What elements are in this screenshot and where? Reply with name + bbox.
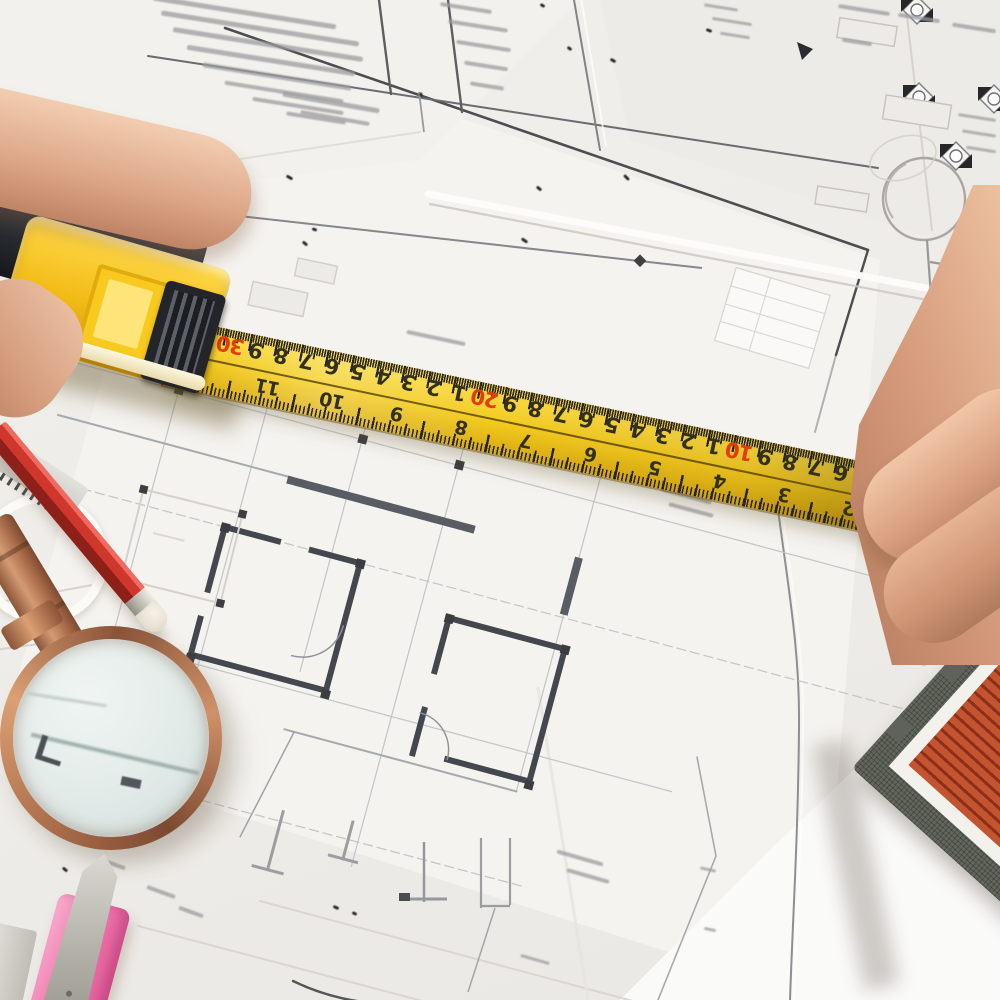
lens-blueprint-line (25, 692, 107, 708)
plan-bottom-columns (399, 838, 510, 992)
tape-inch-number: 10 (319, 388, 347, 412)
title-block-table (715, 268, 831, 369)
tape-cm-number: 30 (215, 331, 246, 357)
tape-inch-number: 11 (254, 374, 282, 398)
tape-cm-number: 20 (470, 385, 501, 411)
tape-cm-number: 10 (724, 438, 755, 464)
magnifier-lens (13, 639, 209, 837)
lens-blueprint-mark (120, 776, 141, 789)
magnifier (0, 626, 222, 850)
handle-ridge (0, 540, 30, 568)
photo-scene: Ef ¾ 30987654321209876543211098765111098… (0, 0, 1000, 1000)
